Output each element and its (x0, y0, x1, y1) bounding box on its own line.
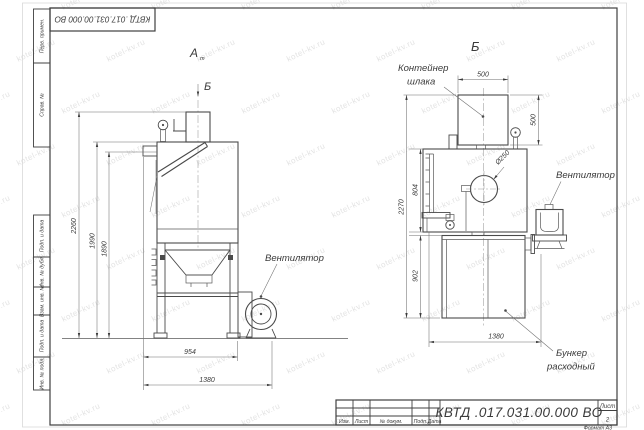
ext-1380 (429, 232, 541, 347)
front-view: А m Б (62, 46, 348, 390)
dim-2270: 2270 (399, 199, 406, 216)
fitting (462, 186, 471, 192)
title-block: Изм. Лист № докум. Подп. Дата КВТД .017.… (336, 400, 617, 430)
sidebar-label: Перв. примен. (40, 19, 46, 53)
sidebar-label: Инв. № дубл. (40, 256, 46, 288)
front-dimensions: 2260 1990 1890 954 1380 (71, 112, 272, 390)
gauge-stem (514, 137, 518, 149)
hopper-callout-line2: расходный (546, 362, 596, 373)
view-a-label: А (189, 46, 198, 60)
hopper-leader (506, 311, 554, 351)
hinge-tabs (152, 249, 157, 285)
side-fan-leader (550, 182, 561, 205)
fan-motor-stub (545, 205, 553, 210)
dim-500h: 500 (531, 114, 538, 126)
side-fan-callout: Вентилятор (556, 170, 615, 181)
gauge-center (514, 131, 516, 133)
slag-container (458, 95, 508, 145)
dim-500w: 500 (477, 72, 489, 79)
gauge-center (162, 124, 164, 126)
container-neck (477, 145, 486, 149)
fan-pedestal (535, 241, 565, 249)
view-b-label: Б (204, 81, 211, 93)
gauge-stem (161, 130, 166, 142)
slag-callout-line2: шлака (407, 77, 435, 88)
dim-1380: 1380 (199, 377, 215, 384)
front-lower-frame (154, 243, 240, 338)
sidebar-label: Подп. и дата (40, 220, 46, 253)
fan-duct (525, 238, 531, 250)
sidebar-label: Подп. и дата (40, 320, 46, 353)
stamp-label-izm: Изм. (339, 419, 350, 425)
fan-axis (260, 313, 262, 315)
sidebar-label: Инв. № подл. (40, 357, 46, 389)
side-fan-group (525, 205, 567, 254)
leader-dot (482, 115, 485, 118)
stamp-label-ndoc: № докум. (380, 419, 403, 425)
sheet-label: Лист (599, 404, 615, 410)
leader-dot (504, 309, 507, 312)
loading-door (158, 143, 208, 177)
door-handle-rod (150, 160, 157, 214)
fan-base-plate (533, 235, 567, 241)
leg-bracket (228, 255, 233, 260)
front-fan-leader (261, 264, 277, 296)
ladder (426, 154, 434, 213)
sidebar-cells: Перв. примен. Справ. № Подп. и дата Инв.… (34, 9, 51, 390)
dim-1990: 1990 (90, 233, 97, 249)
chimney-stub (449, 135, 457, 149)
slag-callout-line1: Контейнер (398, 63, 448, 74)
dim-1890: 1890 (102, 241, 109, 257)
top-code-text: КВТД .017.031.00.000 ВО (54, 15, 150, 24)
base-shelf (157, 293, 238, 297)
fan-scroll (541, 213, 559, 232)
hopper-callout-line1: Бункер (556, 348, 587, 359)
slag-leader (444, 87, 483, 116)
front-fan-callout: Вентилятор (265, 253, 324, 264)
extension-lines (75, 112, 186, 152)
leg-bracket (160, 255, 165, 260)
dim-902: 902 (413, 270, 420, 282)
funnel-outlet (186, 275, 212, 283)
dim-1380: 1380 (488, 334, 504, 341)
dim-2260: 2260 (71, 218, 78, 235)
opening-leader (494, 167, 505, 180)
format-note: Формат А3 (584, 426, 612, 430)
dim-opening: Ø250 (494, 149, 512, 167)
flue-stub (143, 146, 157, 156)
funnel-feet (191, 283, 207, 287)
stamp-label-podp: Подп. (414, 419, 428, 425)
side-view-title: Б (471, 39, 480, 54)
view-a-sub: m (200, 56, 205, 62)
sidebar-label: Справ. № (40, 93, 46, 117)
side-body-group (422, 149, 527, 232)
side-dimensions: 500 500 2270 804 902 1380 Ø250 (399, 72, 543, 348)
slag-container-group (449, 95, 520, 149)
dim-954: 954 (184, 349, 196, 356)
ash-funnel (165, 250, 230, 275)
inner-frame (50, 8, 617, 425)
front-fan (238, 292, 277, 338)
dim-804: 804 (413, 184, 420, 196)
technical-drawing: КВТД .017.031.00.000 ВО Перв. примен. Сп… (0, 0, 644, 430)
valve-center (449, 224, 451, 226)
body-shell (157, 142, 238, 243)
side-view: Б (398, 39, 615, 373)
leader-dot (260, 295, 263, 298)
extension-lines-bottom (144, 157, 273, 390)
sheet-number: 2 (605, 418, 610, 424)
document-code: КВТД .017.031.00.000 ВО (435, 405, 602, 420)
circle-centerlines (466, 171, 502, 207)
stamp-label-list: Лист (354, 419, 369, 425)
foot (154, 333, 167, 338)
drawing-sheet: kotel-kv.rukotel-kv.rukotel-kv.rukotel-k… (0, 0, 644, 430)
sidebar-label: Взам. инв. № (40, 285, 46, 317)
side-body (423, 149, 527, 232)
chimney-pipe (173, 119, 186, 131)
